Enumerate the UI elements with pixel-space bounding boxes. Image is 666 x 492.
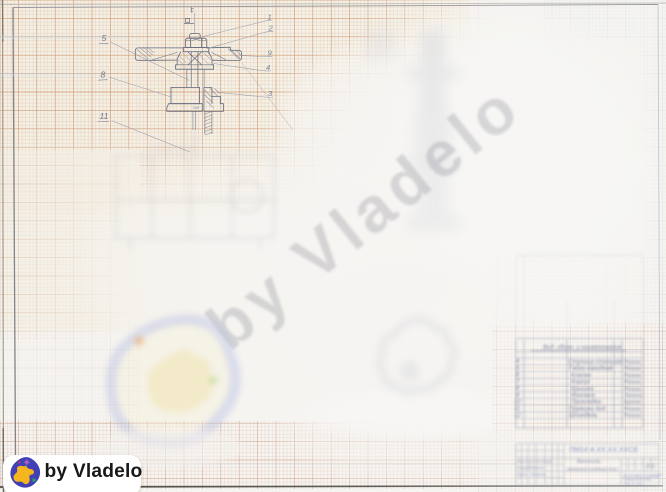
svg-text:Петров: Петров (530, 472, 545, 477)
svg-text:5: 5 (102, 33, 107, 43)
svg-text:Ступица стальная: Ступица стальная (568, 360, 624, 366)
svg-text:11: 11 (100, 111, 109, 121)
svg-text:2-1: 2-1 (645, 464, 655, 470)
svg-text:Пров.: Пров. (517, 472, 528, 477)
svg-text:запорный учебный тип: запорный учебный тип (566, 466, 618, 472)
svg-text:Гайка накидная: Гайка накидная (569, 365, 613, 372)
svg-text:10: 10 (514, 400, 521, 406)
svg-text:Резина: Резина (624, 413, 641, 419)
svg-text:4: 4 (266, 63, 270, 72)
svg-text:Резина: Резина (624, 380, 641, 386)
svg-text:Резина: Резина (624, 366, 641, 372)
svg-text:Резина: Резина (624, 360, 641, 366)
svg-text:Крышка: Крышка (571, 386, 594, 392)
svg-text:ПМ14 А.XX.XX.XXСБ: ПМ14 А.XX.XX.XXСБ (569, 447, 638, 454)
svg-text:Резина: Резина (624, 406, 641, 412)
svg-text:Корпус: Корпус (571, 380, 591, 386)
svg-text:Клапан: Клапан (571, 373, 592, 379)
svg-text:Резина: Резина (624, 386, 641, 392)
svg-text:Резина: Резина (624, 373, 641, 379)
svg-text:Прокладка: Прокладка (571, 400, 602, 406)
svg-text:Латунь: Латунь (623, 393, 643, 399)
svg-text:Вид, обозн. и наименование: Вид, обозн. и наименование (543, 345, 622, 351)
svg-text:Бронза: Бронза (624, 400, 641, 406)
svg-text:Гор. Н. XX.Г.: Гор. Н. XX.Г. (624, 481, 645, 485)
svg-text:Пружина №4: Пружина №4 (569, 405, 606, 412)
svg-text:Маховик: Маховик (571, 393, 596, 399)
svg-text:Шпиндель: Шпиндель (569, 413, 597, 419)
svg-text:Иванов: Иванов (530, 465, 544, 470)
svg-text:Изм Лист № докум.: Изм Лист № докум. (517, 460, 553, 464)
svg-text:12: 12 (514, 413, 521, 419)
svg-text:11: 11 (514, 406, 520, 412)
svg-text:24б: 24б (192, 105, 200, 110)
svg-text:Вентиль: Вентиль (577, 459, 601, 465)
svg-text:8: 8 (101, 70, 106, 80)
svg-text:2: 2 (268, 24, 274, 33)
svg-text:1: 1 (268, 12, 272, 21)
